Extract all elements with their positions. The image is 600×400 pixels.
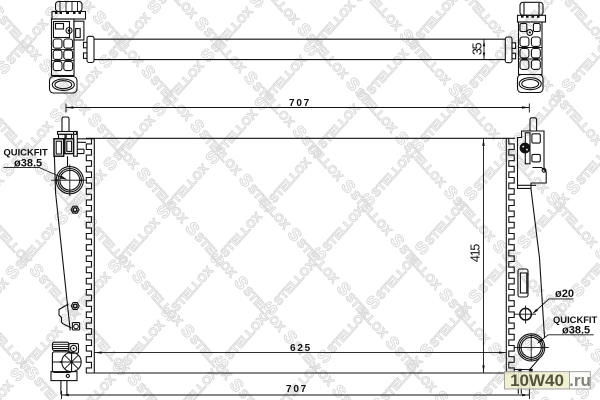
svg-text:35: 35 bbox=[470, 42, 484, 55]
svg-text:QUICKFIT: QUICKFIT bbox=[4, 147, 49, 158]
svg-text:707: 707 bbox=[286, 384, 308, 395]
svg-text:ø20: ø20 bbox=[555, 288, 574, 300]
svg-text:625: 625 bbox=[290, 343, 312, 354]
svg-text:707: 707 bbox=[289, 98, 311, 109]
svg-text:QUICKFIT: QUICKFIT bbox=[553, 314, 598, 325]
svg-text:10W40: 10W40 bbox=[510, 371, 564, 390]
svg-text:415: 415 bbox=[469, 244, 483, 263]
svg-text:.ru: .ru bbox=[569, 371, 591, 390]
